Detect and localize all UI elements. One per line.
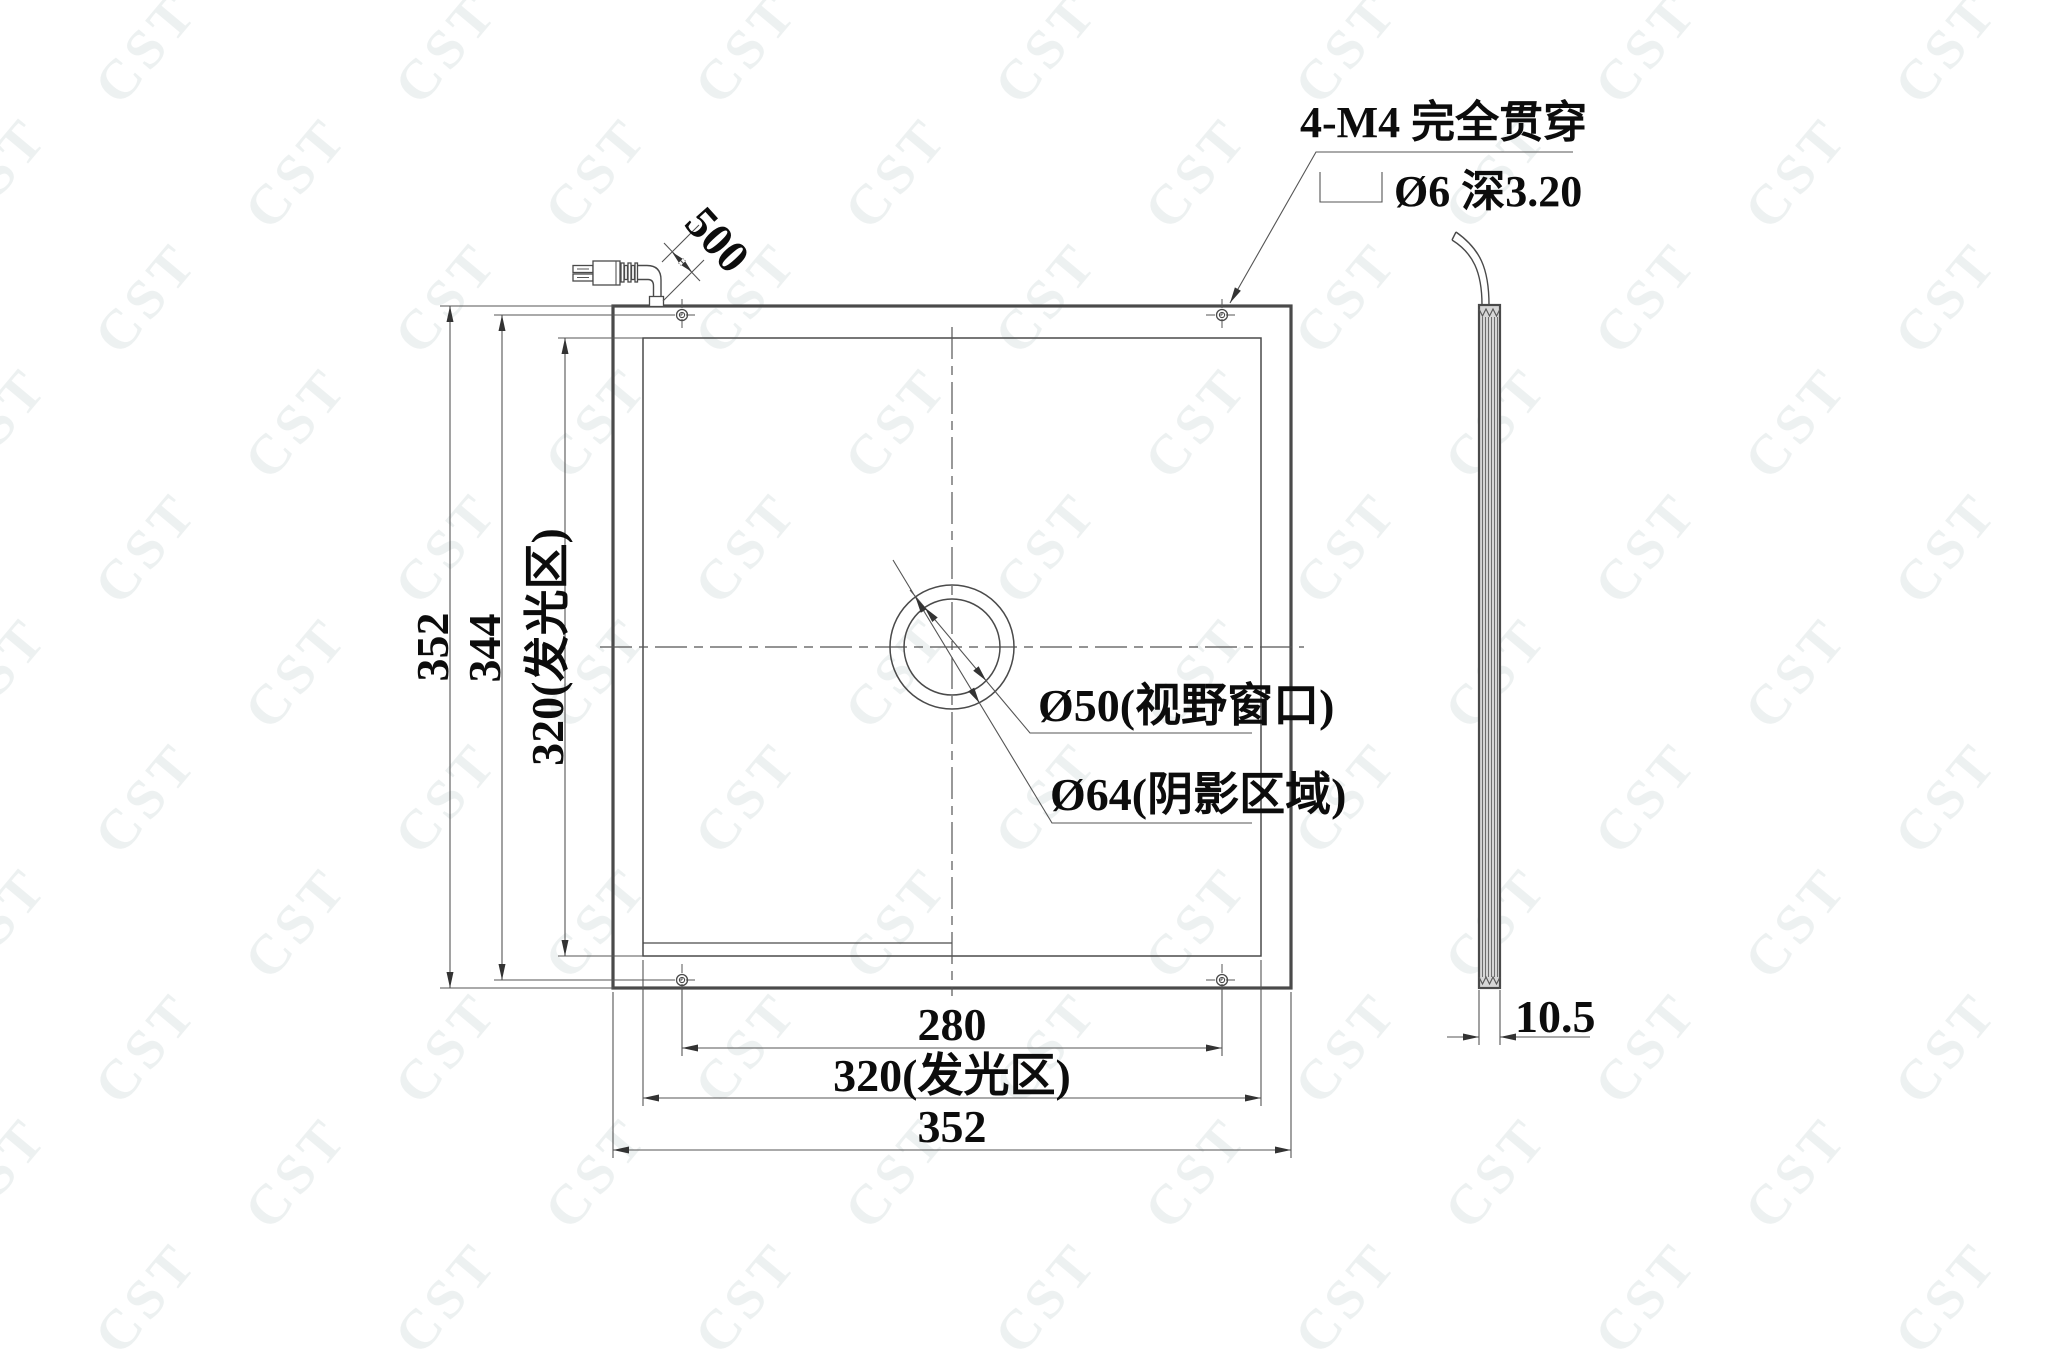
counterbore-symbol-icon — [1320, 172, 1382, 202]
label-view-window: Ø50(视野窗口) — [1038, 680, 1334, 731]
dim-luminous-width: 320(发光区) — [833, 1050, 1071, 1101]
dim-luminous-height: 320(发光区) — [522, 528, 573, 766]
label-shadow-area: Ø64(阴影区域) — [1050, 769, 1346, 820]
led-panel-drawing: CST — [0, 0, 2048, 1366]
dim-hole-pitch-vertical: 344 — [459, 614, 510, 683]
watermark-layer — [0, 0, 2010, 1366]
extension-lines-thickness — [1479, 990, 1500, 1045]
dimension-arrows-thickness — [1463, 1034, 1516, 1041]
dim-hole-pitch-horizontal: 280 — [918, 999, 987, 1050]
dim-overall-width: 352 — [918, 1101, 987, 1152]
cable-strain-relief — [621, 263, 638, 282]
dim-thickness: 10.5 — [1515, 991, 1596, 1042]
cable — [638, 266, 662, 297]
dim-overall-height: 352 — [407, 613, 458, 682]
side-cable — [1452, 232, 1489, 305]
cad-drawing-page: CST — [0, 0, 2048, 1366]
cable-gland — [650, 297, 664, 307]
leader-arrow-mounting-note — [1230, 287, 1241, 303]
note-mounting-holes: 4-M4 完全贯穿 — [1300, 97, 1587, 147]
note-counterbore-spec: Ø6 深3.20 — [1394, 167, 1582, 216]
